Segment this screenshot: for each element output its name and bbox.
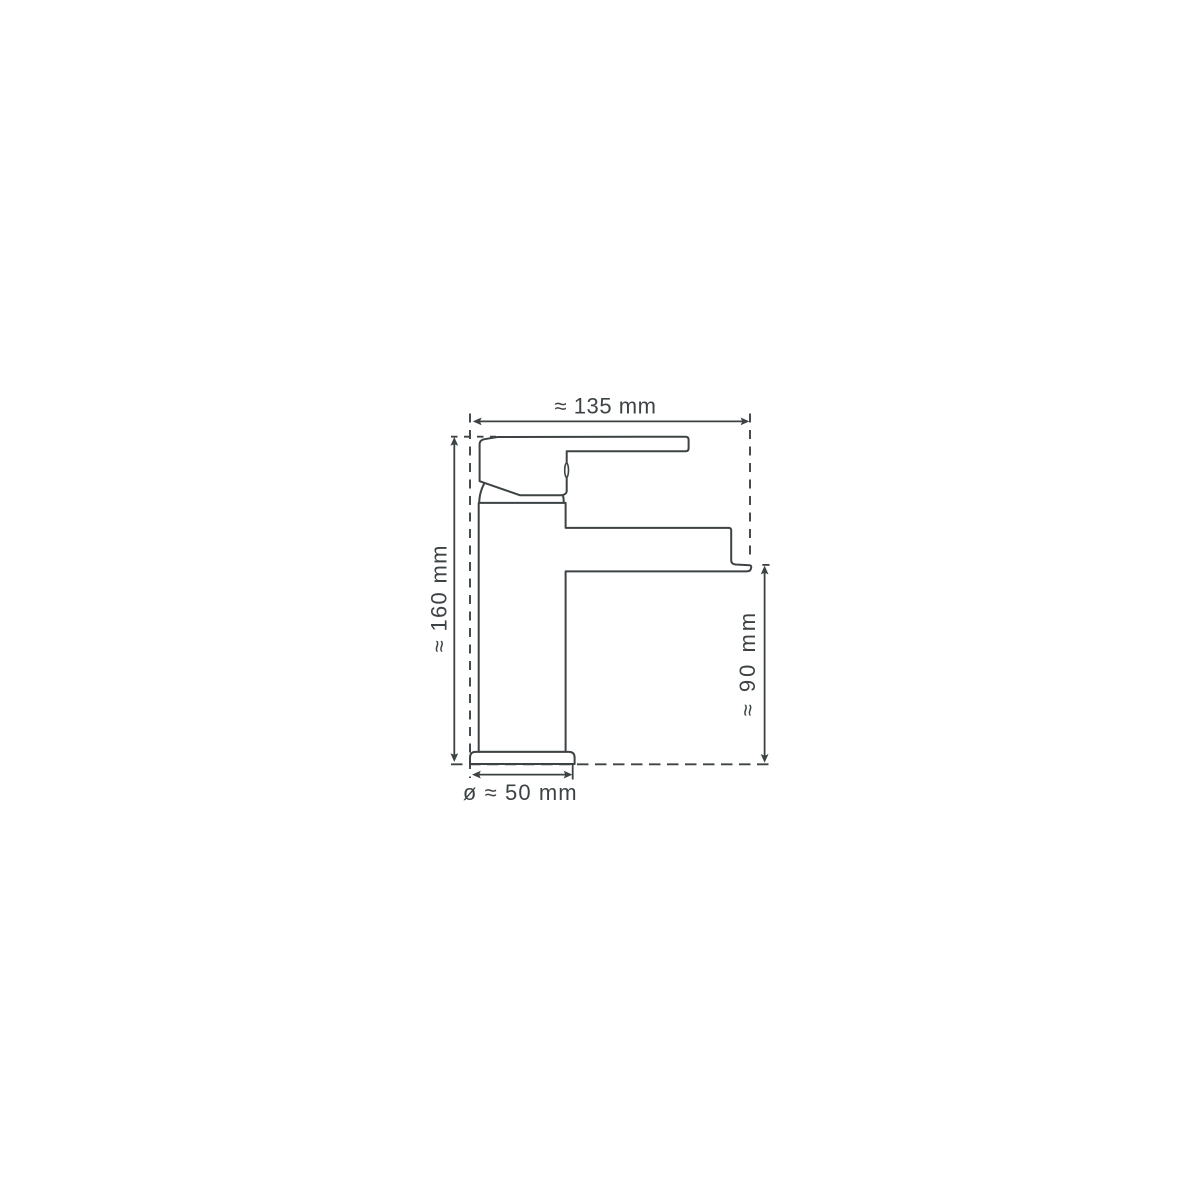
svg-text:≈ 90 mm: ≈ 90 mm (735, 610, 760, 716)
svg-text:≈ 135 mm: ≈ 135 mm (554, 394, 656, 419)
svg-text:≈ 160 mm: ≈ 160 mm (427, 544, 452, 652)
svg-text:ø ≈ 50 mm: ø ≈ 50 mm (463, 780, 578, 805)
